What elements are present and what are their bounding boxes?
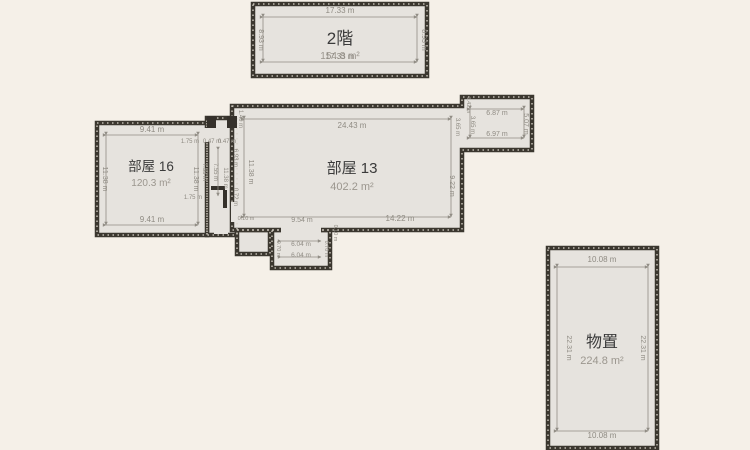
dimension-label: 8.93 m <box>420 29 427 51</box>
floor-plan-svg: 2階 154.8 m² 部屋 16 120.3 m² 部屋 13 402.2 m… <box>0 0 750 450</box>
room-area-storage: 224.8 m² <box>580 355 624 367</box>
dimension-label: 3.65 m <box>454 118 460 136</box>
dimension-label: 10.08 m <box>588 431 617 440</box>
dimension-label: 7.55 m <box>212 163 218 181</box>
dimension-label: 0.72 m <box>232 188 238 206</box>
dimension-label: 1.75 m <box>181 139 199 145</box>
dimension-label: 11.38 m <box>192 167 199 192</box>
dimension-label: 14.22 m <box>386 214 415 223</box>
dimension-label: 0.70 m <box>275 241 281 258</box>
dimension-label: 0.47 m <box>218 139 236 145</box>
dimension-label: 9.41 m <box>140 215 165 224</box>
room-title-2f: 2階 <box>327 29 353 48</box>
dimension-label: 6.04 m <box>291 252 311 259</box>
dimension-label: 6.97 m <box>486 131 508 138</box>
dimension-label: 22.31 m <box>639 335 646 360</box>
dimension-label: 6.87 m <box>486 110 508 117</box>
dimension-label: 9.22 m <box>448 175 455 197</box>
dimension-label: 11.38 m <box>222 167 228 188</box>
dimension-label: 1.40 m <box>237 110 243 128</box>
dimension-label: 10.08 m <box>588 255 617 264</box>
vestibule-floor[interactable] <box>237 230 270 254</box>
dimension-label: 0.70 m <box>323 241 329 258</box>
dimension-label: 0.10 m <box>332 225 338 242</box>
dimension-label: 9.54 m <box>291 217 313 224</box>
room-area-13: 402.2 m² <box>330 181 374 193</box>
dimension-label: 5.07 m <box>522 113 529 135</box>
dimension-label: 17.33 m <box>326 52 355 61</box>
dimension-label: 22.31 m <box>565 335 572 360</box>
dimension-label: 8.93 m <box>257 29 264 51</box>
room-title-16: 部屋 16 <box>128 159 174 174</box>
dimension-label: 24.43 m <box>338 121 367 130</box>
dimension-label: 6.93 m <box>232 149 238 167</box>
dimension-label: 9.41 m <box>140 125 165 134</box>
room-title-storage: 物置 <box>586 333 618 351</box>
room-area-16: 120.3 m² <box>131 178 171 189</box>
dimension-label: 3.65 m <box>469 116 475 134</box>
dimension-label: 11.38 m <box>247 160 254 185</box>
building-shapes <box>97 4 657 448</box>
dimension-label: 1.75 m <box>184 195 202 201</box>
dimension-label: 11.38 m <box>101 167 108 192</box>
room-title-13: 部屋 13 <box>327 160 378 177</box>
dimension-label: 7.55 m <box>201 163 207 181</box>
dimension-label: 1.42 m <box>465 97 471 114</box>
dimension-label: 6.04 m <box>291 241 311 248</box>
floor-plan-canvas: 2階 154.8 m² 部屋 16 120.3 m² 部屋 13 402.2 m… <box>0 0 750 450</box>
dimension-label: 0.10 m <box>238 216 255 222</box>
dimension-label: 17.33 m <box>326 6 355 15</box>
